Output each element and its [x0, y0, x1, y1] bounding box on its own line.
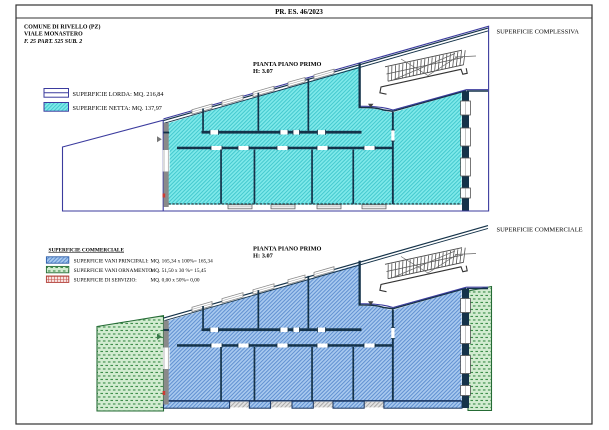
svg-text:SUPERFICIE NETTA: MQ. 137,97: SUPERFICIE NETTA: MQ. 137,97 — [73, 105, 162, 112]
svg-text:MQ. 165,34 x 100%= 165,34: MQ. 165,34 x 100%= 165,34 — [151, 258, 214, 264]
svg-text:SUPERFICIE VANI PRINCIPALI:: SUPERFICIE VANI PRINCIPALI: — [74, 258, 149, 264]
svg-text:SUPERFICIE COMPLESSIVA: SUPERFICIE COMPLESSIVA — [497, 29, 580, 36]
svg-text:SUPERFICIE COMMERCIALE: SUPERFICIE COMMERCIALE — [49, 247, 125, 253]
svg-text:PIANTA PIANO PRIMO: PIANTA PIANO PRIMO — [253, 246, 322, 253]
svg-text:H: 3.07: H: 3.07 — [253, 253, 274, 260]
svg-text:COMUNE DI RIVELLO (PZ): COMUNE DI RIVELLO (PZ) — [24, 24, 100, 31]
svg-text:PIANTA PIANO PRIMO: PIANTA PIANO PRIMO — [253, 61, 322, 68]
svg-text:SUPERFICIE COMMERCIALE: SUPERFICIE COMMERCIALE — [497, 227, 583, 234]
svg-text:SUPERFICIE DI SERVIZIO:: SUPERFICIE DI SERVIZIO: — [74, 278, 138, 284]
svg-text:PR. ES. 46/2023: PR. ES. 46/2023 — [275, 8, 323, 16]
svg-text:H: 3.07: H: 3.07 — [253, 68, 274, 75]
svg-text:F. 25 PART. 525 SUB. 2: F. 25 PART. 525 SUB. 2 — [24, 39, 82, 45]
svg-text:MQ. 0,00 x 50%= 0,00: MQ. 0,00 x 50%= 0,00 — [151, 278, 200, 284]
svg-text:VIALE MONASTERO: VIALE MONASTERO — [24, 32, 83, 38]
svg-text:SUPERFICIE VANI ORNAMENTO:: SUPERFICIE VANI ORNAMENTO: — [74, 268, 155, 274]
svg-text:SUPERFICIE LORDA: MQ. 216,84: SUPERFICIE LORDA: MQ. 216,84 — [73, 91, 164, 98]
svg-text:MQ. 51,50 x 30 %= 15,45: MQ. 51,50 x 30 %= 15,45 — [151, 268, 207, 274]
